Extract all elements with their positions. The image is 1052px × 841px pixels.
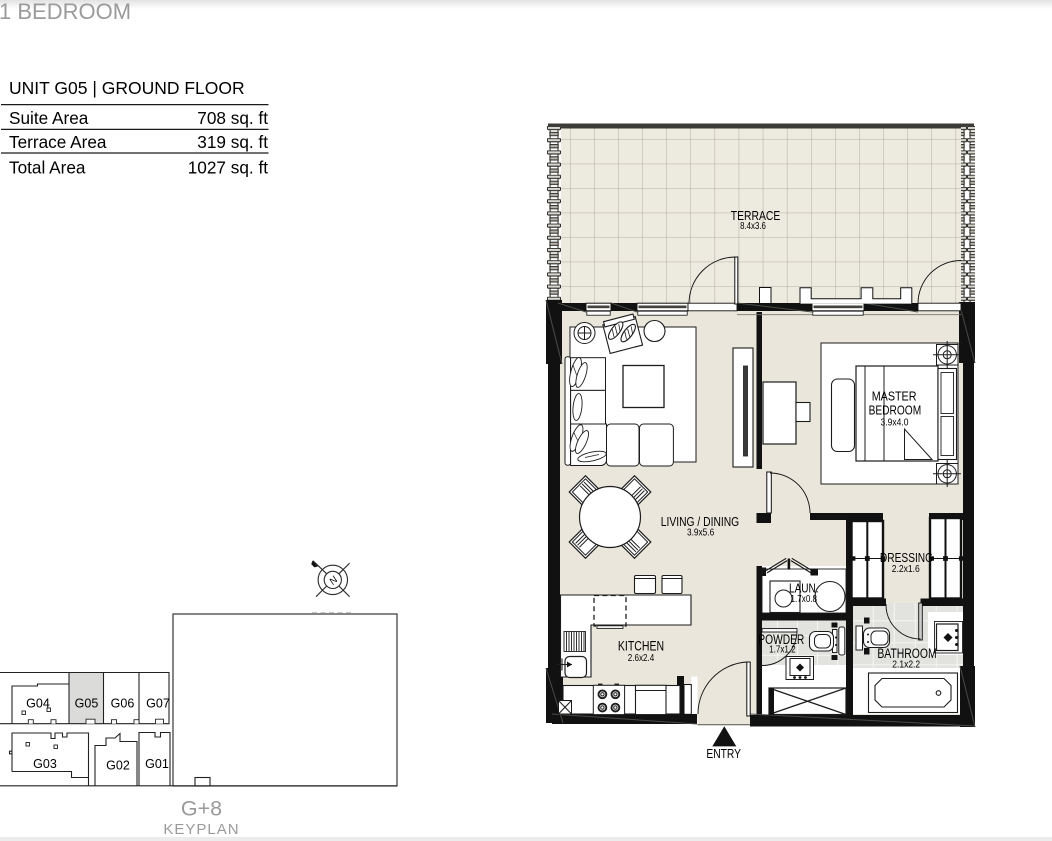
svg-text:G07: G07	[146, 697, 170, 711]
svg-text:708 sq. ft: 708 sq. ft	[197, 108, 268, 128]
svg-text:G01: G01	[145, 757, 169, 771]
svg-text:G04: G04	[26, 697, 50, 711]
svg-text:8.4x3.6: 8.4x3.6	[740, 221, 766, 232]
svg-text:G02: G02	[106, 759, 130, 773]
svg-text:MASTER: MASTER	[872, 389, 917, 404]
svg-text:Total Area: Total Area	[9, 158, 86, 178]
svg-text:1.7x1.2: 1.7x1.2	[769, 644, 796, 656]
svg-text:G05: G05	[75, 697, 99, 711]
svg-text:1027 sq. ft: 1027 sq. ft	[188, 158, 268, 178]
svg-text:G03: G03	[33, 757, 57, 771]
svg-text:KEYPLAN: KEYPLAN	[163, 821, 239, 838]
svg-text:LAUN.: LAUN.	[789, 581, 819, 595]
svg-text:UNIT G05 | GROUND FLOOR: UNIT G05 | GROUND FLOOR	[9, 78, 245, 98]
svg-text:Terrace Area: Terrace Area	[9, 132, 107, 152]
svg-text:3.9x4.0: 3.9x4.0	[881, 416, 909, 428]
svg-text:319 sq. ft: 319 sq. ft	[197, 132, 268, 152]
svg-text:G06: G06	[111, 697, 135, 711]
svg-text:BEDROOM: BEDROOM	[869, 402, 922, 417]
svg-text:Suite Area: Suite Area	[9, 108, 89, 128]
svg-text:G+8: G+8	[181, 797, 222, 821]
svg-text:2.1x2.2: 2.1x2.2	[892, 658, 920, 670]
svg-text:2.6x2.4: 2.6x2.4	[628, 652, 655, 664]
svg-text:1.7x0.8: 1.7x0.8	[791, 594, 818, 605]
svg-text:2.2x1.6: 2.2x1.6	[892, 563, 920, 575]
svg-text:ENTRY: ENTRY	[706, 746, 741, 761]
svg-text:1 BEDROOM: 1 BEDROOM	[0, 0, 131, 24]
svg-text:3.9x5.6: 3.9x5.6	[687, 526, 714, 538]
